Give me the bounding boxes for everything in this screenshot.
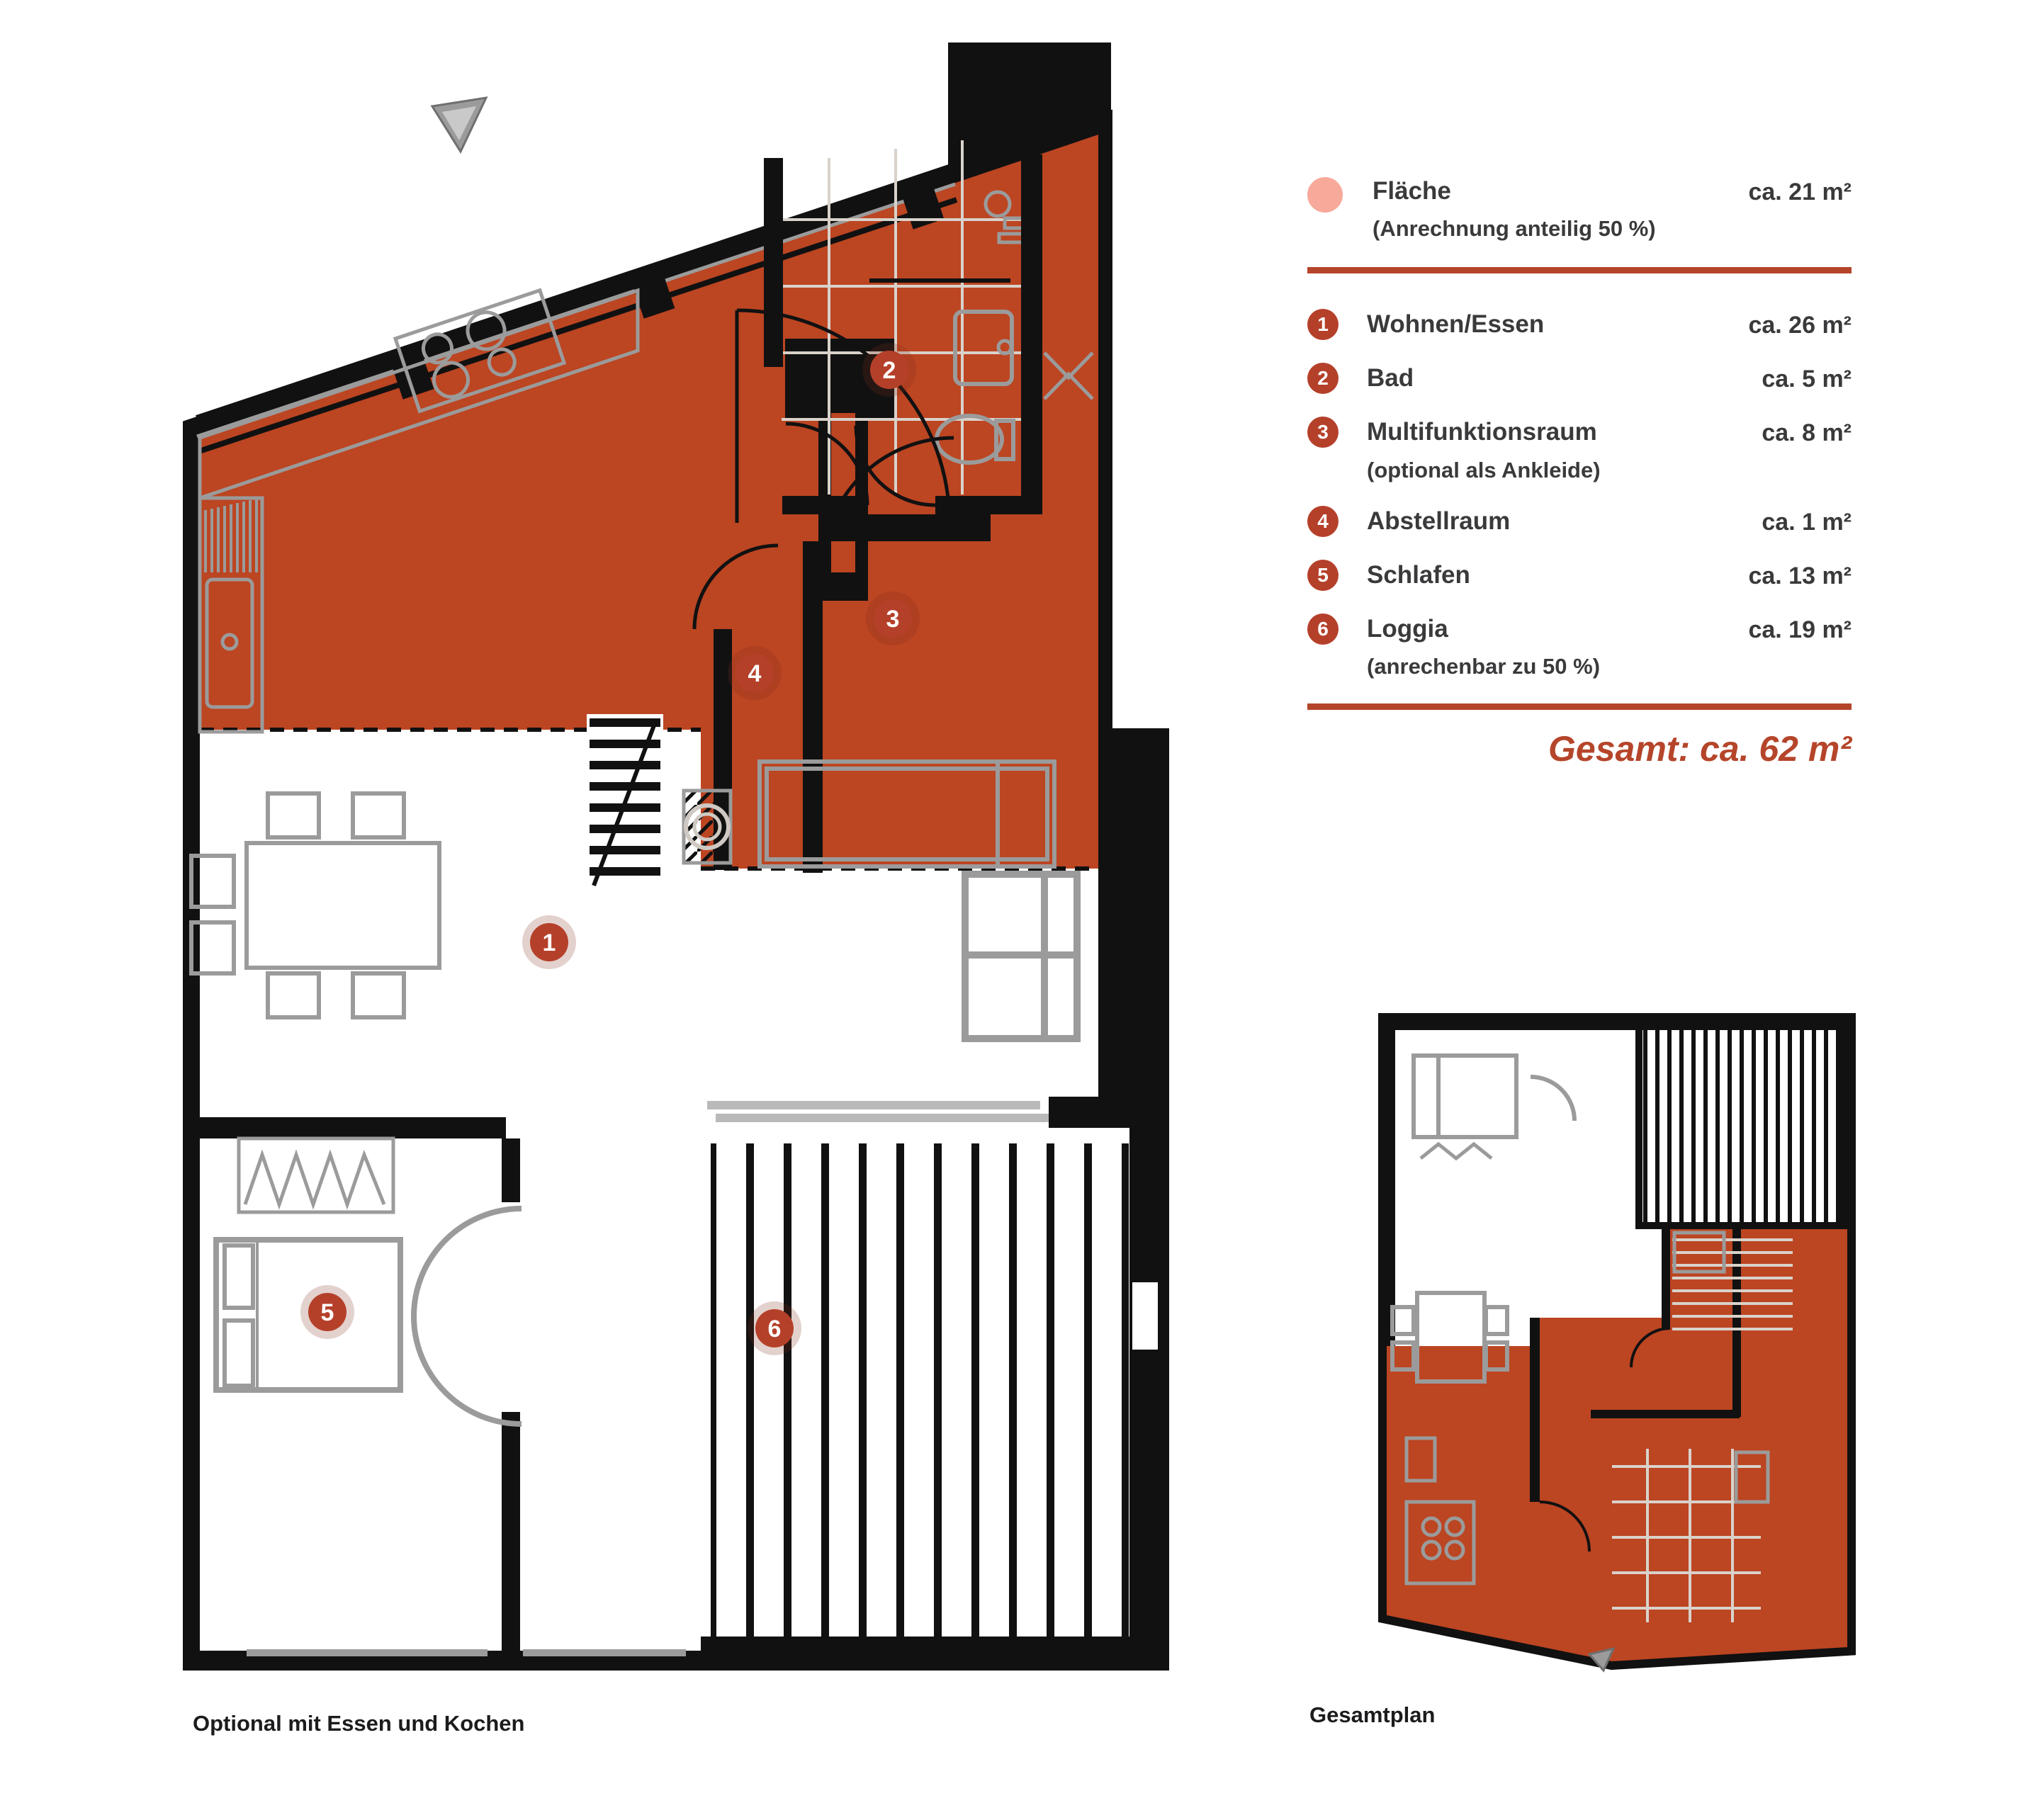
room-label: Bad: [1367, 364, 1414, 392]
legend: Fläche (Anrechnung anteilig 50 %) ca. 21…: [1307, 177, 1852, 769]
legend-rooms: 1Wohnen/Essenca. 26 m²2Badca. 5 m²3Multi…: [1307, 310, 1852, 679]
legend-room-row: 3Multifunktionsraum(optional als Ankleid…: [1307, 418, 1852, 482]
plan-badge-5: 5: [321, 1299, 334, 1326]
legend-highlight-row: Fläche (Anrechnung anteilig 50 %) ca. 21…: [1307, 177, 1852, 242]
legend-room-row: 1Wohnen/Essenca. 26 m²: [1307, 310, 1852, 340]
main-floor-plan: 1 2 3 4 5 6: [183, 41, 1169, 1672]
north-arrow-icon: [432, 98, 486, 152]
room-label: Multifunktionsraum: [1367, 418, 1601, 446]
pink-circle-swatch-icon: [1307, 177, 1343, 213]
key-plan: [1378, 1013, 1856, 1679]
terrace-decking: [711, 1143, 1129, 1639]
key-plan-caption: Gesamtplan: [1309, 1702, 1435, 1728]
room-area: ca. 1 m²: [1762, 507, 1852, 536]
page: 1 2 3 4 5 6: [0, 0, 2040, 1820]
room-area: ca. 26 m²: [1748, 310, 1852, 339]
legend-room-row: 4Abstellraumca. 1 m²: [1307, 507, 1852, 537]
highlight-label: Fläche: [1373, 177, 1656, 205]
key-louver-block: [1639, 1022, 1847, 1226]
room-area: ca. 19 m²: [1748, 615, 1852, 644]
room-area: ca. 5 m²: [1762, 364, 1852, 393]
legend-room-row: 5Schlafenca. 13 m²: [1307, 561, 1852, 591]
plan-badge-1: 1: [543, 929, 556, 956]
room-number-badge: 5: [1307, 560, 1339, 591]
main-plan-caption: Optional mit Essen und Kochen: [193, 1711, 524, 1736]
plan-badge-6: 6: [768, 1316, 782, 1343]
room-number-badge: 3: [1307, 417, 1339, 448]
room-label: Loggia: [1367, 615, 1600, 643]
room-area: ca. 8 m²: [1762, 418, 1852, 447]
legend-divider-bottom: [1307, 703, 1852, 710]
highlight-note: (Anrechnung anteilig 50 %): [1373, 215, 1656, 242]
highlight-area: ca. 21 m²: [1748, 177, 1852, 206]
room-note: (optional als Ankleide): [1367, 457, 1601, 483]
room-number-badge: 2: [1307, 363, 1339, 394]
plan-badge-4: 4: [748, 660, 762, 687]
plan-badge-3: 3: [886, 606, 900, 633]
room-number-badge: 6: [1307, 614, 1339, 645]
room-note: (anrechenbar zu 50 %): [1367, 653, 1600, 679]
legend-room-row: 6Loggia(anrechenbar zu 50 %)ca. 19 m²: [1307, 615, 1852, 679]
room-label: Schlafen: [1367, 561, 1470, 589]
stairs-icon: [587, 714, 663, 891]
legend-room-row: 2Badca. 5 m²: [1307, 364, 1852, 394]
room-label: Wohnen/Essen: [1367, 310, 1544, 339]
washing-machine-icon: [684, 791, 731, 863]
room-area: ca. 13 m²: [1748, 561, 1852, 590]
drainer-icon: [205, 499, 257, 572]
room-number-badge: 1: [1307, 309, 1339, 340]
legend-divider-top: [1307, 267, 1852, 273]
total-area: Gesamt: ca. 62 m²: [1307, 728, 1852, 769]
room-number-badge: 4: [1307, 506, 1339, 537]
plan-badge-2: 2: [883, 357, 896, 384]
room-label: Abstellraum: [1367, 507, 1510, 536]
